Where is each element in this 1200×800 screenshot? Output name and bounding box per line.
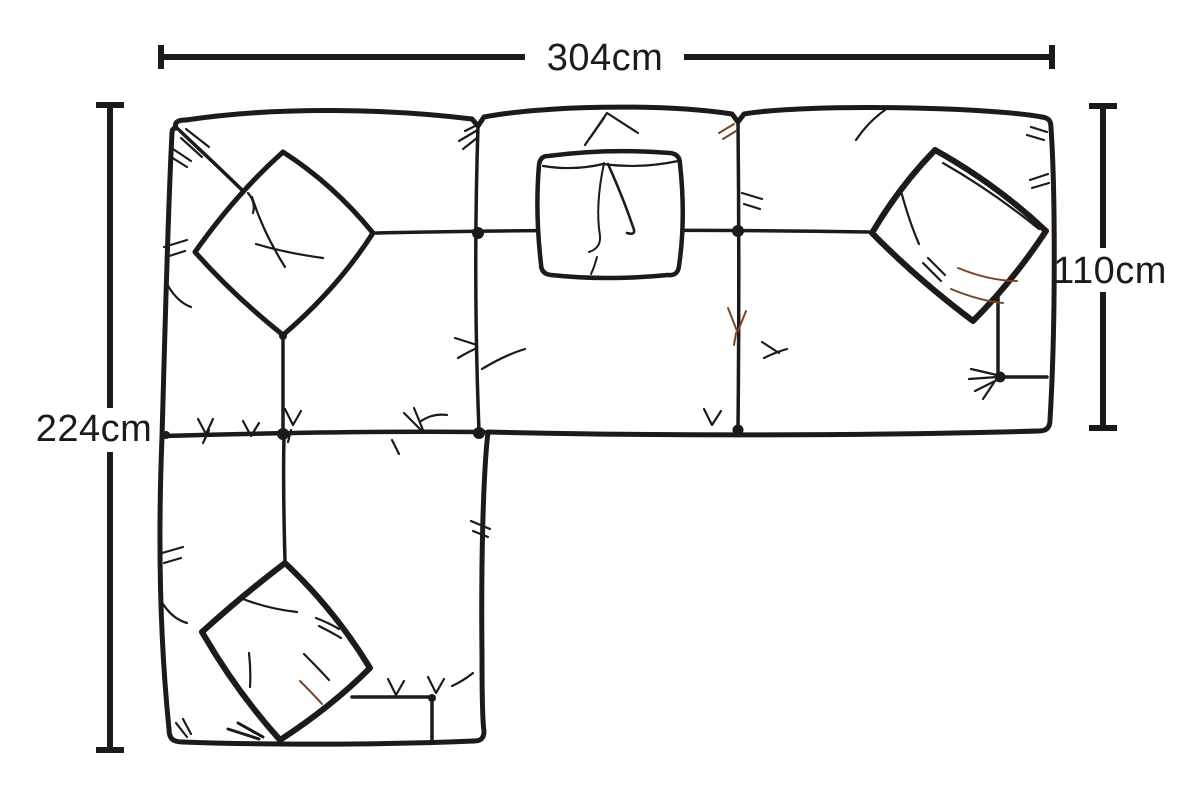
wrinkle bbox=[1030, 174, 1049, 188]
wrinkle bbox=[388, 673, 473, 695]
seam-dot bbox=[472, 227, 484, 239]
wrinkle bbox=[421, 415, 447, 421]
wrinkle bbox=[719, 124, 736, 139]
wrinkle bbox=[742, 193, 762, 209]
overall-depth-label: 224cm bbox=[36, 408, 153, 450]
pillow-chaise bbox=[202, 563, 370, 740]
pillow-outline bbox=[872, 150, 1046, 321]
section-seam-right bbox=[738, 122, 739, 429]
wrinkle bbox=[176, 719, 191, 737]
seam-dot bbox=[279, 332, 287, 340]
chaise-top-seam bbox=[164, 432, 484, 436]
section-seam-left bbox=[476, 126, 479, 431]
seam-dot bbox=[733, 425, 744, 436]
wrinkle bbox=[762, 342, 787, 358]
pillow-outline bbox=[195, 152, 373, 335]
pillow-outline bbox=[202, 563, 370, 740]
wrinkle bbox=[585, 113, 638, 145]
right-armrest-seam bbox=[998, 290, 1047, 377]
wrinkle bbox=[161, 547, 187, 623]
seam-dot bbox=[428, 694, 436, 702]
seam-dot bbox=[732, 225, 744, 237]
seam-dot bbox=[277, 428, 289, 440]
wrinkle bbox=[704, 409, 721, 425]
wrinkle bbox=[856, 110, 885, 140]
sofa-drawing bbox=[160, 107, 1054, 744]
wrinkle bbox=[459, 125, 477, 149]
pillow-right bbox=[872, 150, 1046, 321]
diagram-canvas: 304cm 224cm 110cm bbox=[0, 0, 1200, 800]
pillow-middle bbox=[537, 151, 682, 278]
seam-dot bbox=[162, 431, 170, 439]
wrinkle bbox=[455, 338, 525, 369]
chaise-center-seam bbox=[284, 436, 285, 561]
seam-dot bbox=[473, 427, 485, 439]
corner-diagonal-seam bbox=[178, 129, 246, 194]
sofa-depth-label: 110cm bbox=[1053, 250, 1167, 292]
wrinkle bbox=[969, 369, 997, 399]
wrinkle bbox=[198, 419, 213, 443]
sofa-dimension-diagram: 304cm 224cm 110cm bbox=[0, 0, 1200, 800]
wrinkle bbox=[1027, 127, 1047, 140]
chaise-armrest-seam bbox=[352, 697, 432, 740]
wrinkle bbox=[228, 723, 263, 739]
overall-width-label: 304cm bbox=[547, 37, 664, 79]
pillow-corner bbox=[195, 152, 373, 335]
wrinkle bbox=[171, 129, 209, 167]
